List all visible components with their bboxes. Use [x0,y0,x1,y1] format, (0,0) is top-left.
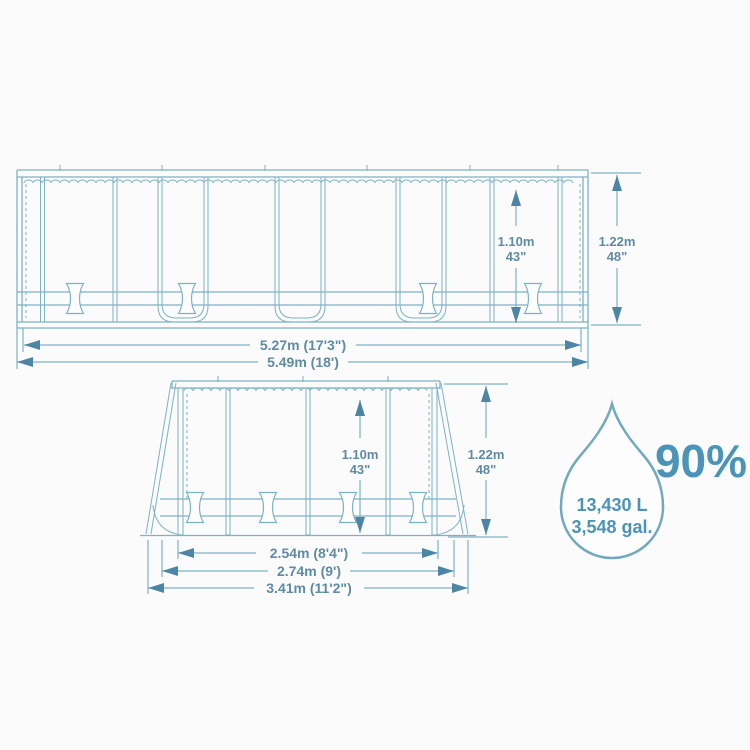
side-inner-length-label: 5.27m (17'3") [260,337,346,353]
side-outer-length-label: 5.49m (18') [267,354,339,370]
end-outer-width-label: 3.41m (11'2") [266,580,351,596]
side-water-height-in-label: 43" [506,249,527,264]
end-frame-height-m-label: 1.22m [468,447,505,462]
end-band [160,499,456,516]
end-frame-height-in-label: 48" [476,462,497,477]
side-band [17,292,588,305]
end-left-leg [146,383,176,534]
dim-end-frame-height: 1.22m 48" [444,384,508,537]
side-view: 1.10m 43" 1.22m 48" 5.27m (17'3") 5.49m … [17,165,641,370]
end-walls [178,388,437,535]
end-top-rail [172,376,440,389]
end-frame-width-label: 2.74m (9') [277,563,341,579]
end-water-height-m-label: 1.10m [342,447,379,462]
side-water-height-m-label: 1.10m [498,234,535,249]
side-bottom-rail [17,322,588,328]
dim-side-inner-length: 5.27m (17'3") [23,328,581,353]
pool-dimensions-drawing: 1.10m 43" 1.22m 48" 5.27m (17'3") 5.49m … [0,0,750,750]
dim-end-inner-width: 2.54m (8'4") [178,540,438,561]
side-frame-height-in-label: 48" [607,249,628,264]
end-water-height-in-label: 43" [350,462,371,477]
side-right-wall [580,170,588,328]
capacity-liters-label: 13,430 L [576,495,647,515]
side-top-rail [17,165,588,177]
side-u-supports [158,177,446,322]
pool-spec-diagram: 1.10m 43" 1.22m 48" 5.27m (17'3") 5.49m … [0,0,750,750]
end-inner-width-label: 2.54m (8'4") [270,545,348,561]
dim-side-frame-height: 1.22m 48" [591,173,641,325]
side-left-wall [17,170,26,328]
end-view: 1.10m 43" 1.22m 48" 2.54m (8'4") 2.74m (… [140,376,508,596]
capacity-fill-percent-label: 90% [655,435,747,487]
capacity-gallons-label: 3,548 gal. [571,517,652,537]
side-posts [41,177,563,322]
side-band-connectors [67,284,542,314]
side-frame-height-m-label: 1.22m [599,234,636,249]
water-capacity: 13,430 L 3,548 gal. 90% [561,404,747,558]
side-water-line [24,180,573,183]
